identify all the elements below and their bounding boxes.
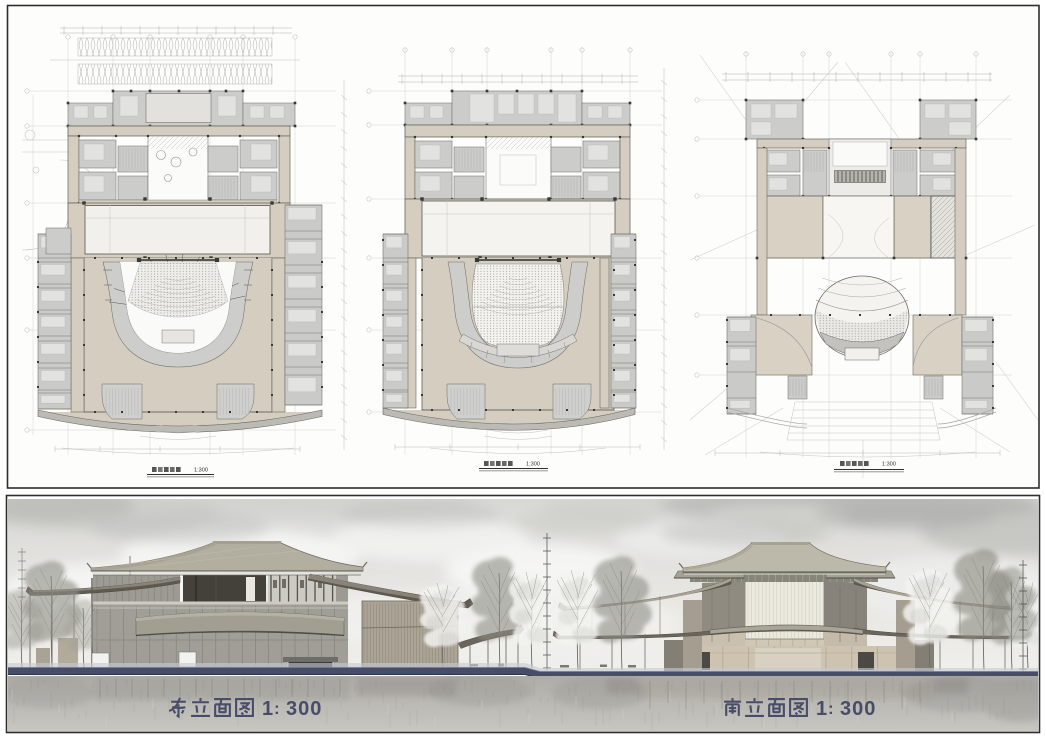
svg-text:1:300: 1:300 [882,462,896,468]
svg-text:1:300: 1:300 [194,468,208,474]
svg-text:300: 300 [840,698,876,720]
svg-text:1: 1 [816,698,827,720]
svg-text:300: 300 [286,698,322,720]
svg-text::: : [828,699,834,718]
svg-text::: : [274,699,280,718]
svg-text:1:300: 1:300 [526,462,540,468]
svg-text:1: 1 [262,698,273,720]
